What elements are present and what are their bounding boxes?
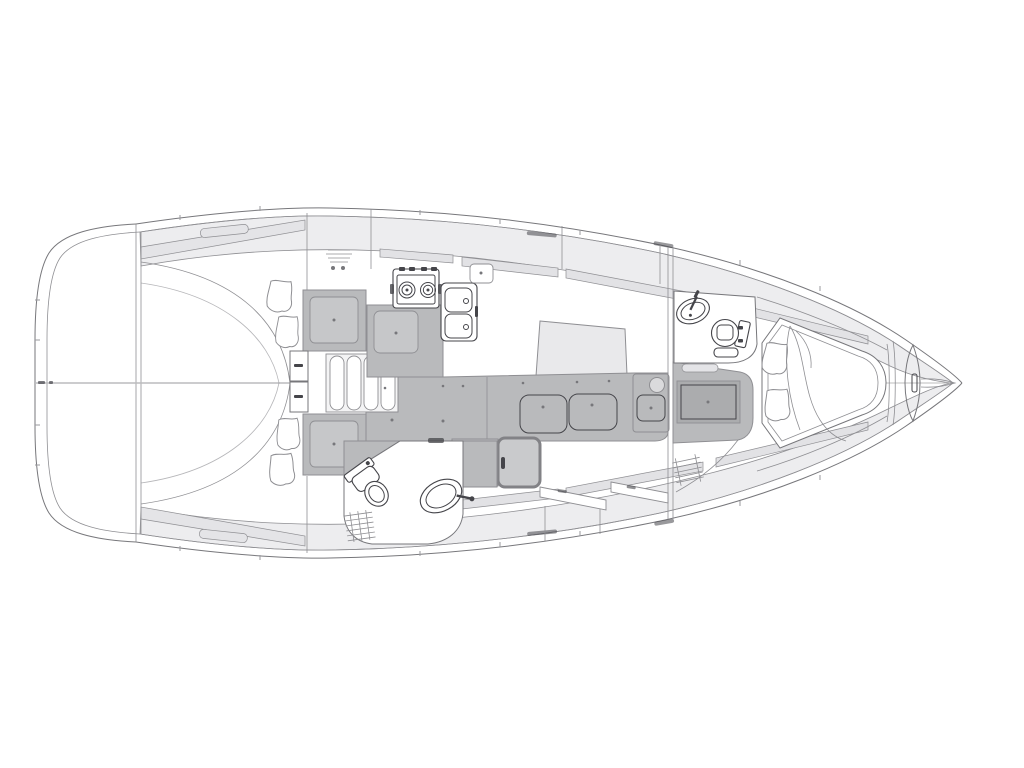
door-handle-icon bbox=[428, 438, 444, 443]
settee-end-unit bbox=[633, 374, 669, 432]
saloon-settee bbox=[366, 373, 668, 441]
forward-head bbox=[670, 288, 757, 363]
galley-sink bbox=[441, 283, 478, 341]
cleat-icon bbox=[653, 241, 673, 248]
boat-floor-plan bbox=[0, 0, 1024, 768]
pedestal-icon bbox=[650, 378, 665, 393]
cleat-icon bbox=[654, 519, 674, 526]
aft-head-side-cabinet bbox=[463, 441, 497, 487]
vent-louver-icon bbox=[326, 250, 352, 270]
galley-stove bbox=[390, 267, 442, 308]
fridge-box bbox=[498, 438, 540, 487]
saloon-table bbox=[536, 321, 627, 376]
step-drawers bbox=[290, 351, 308, 412]
berth-handle-icon bbox=[682, 364, 718, 372]
boat-floor-plan-page bbox=[0, 0, 1024, 768]
